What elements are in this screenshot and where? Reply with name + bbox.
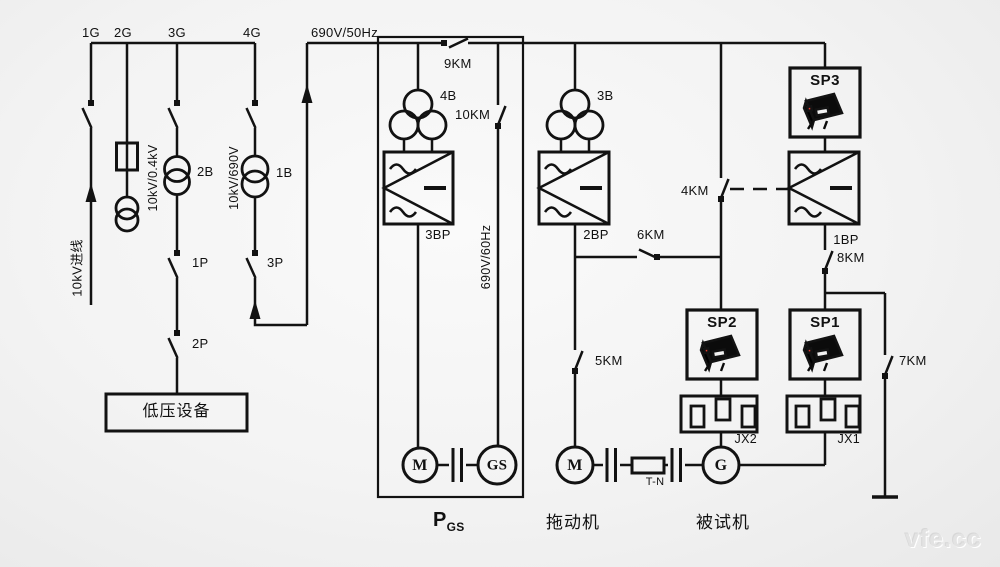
- converter-1bp-icon: [789, 152, 859, 224]
- watermark: vfe.cc: [905, 527, 982, 552]
- feeder-2g-branch: [116, 43, 138, 231]
- tie-6km-branch: [575, 250, 721, 261]
- torque-sensor-box: [632, 458, 664, 473]
- incoming-line-label: 10kV进线: [71, 239, 84, 296]
- converter-2bp-icon: [539, 152, 609, 224]
- connector-pin-icon: [846, 406, 859, 427]
- switch-1p-icon: [174, 250, 180, 256]
- converter-3bp-icon: [384, 152, 453, 224]
- feeder-label-1g: 1G: [82, 26, 100, 39]
- power-analyzer-icon: [701, 336, 739, 371]
- flow-arrow-icon: [250, 300, 261, 319]
- connector-pin-icon: [821, 399, 835, 420]
- transformer-label-3b: 3B: [597, 89, 614, 102]
- ratio-label-2b: 10kV/0.4kV: [147, 145, 160, 212]
- analyzer-label-sp2: SP2: [687, 315, 757, 330]
- drive-machine-caption: 拖动机: [546, 514, 600, 531]
- lv-equipment-label: 低压设备: [106, 404, 247, 420]
- bus-label-690v50hz: 690V/50Hz: [311, 26, 378, 39]
- pgs-enclosure-box: [378, 37, 523, 497]
- power-analyzer-icon: [804, 94, 842, 129]
- pgs-caption-sub: GS: [447, 520, 465, 534]
- switch-8km-icon: [822, 268, 828, 274]
- feeder-1g-branch: [83, 43, 97, 305]
- switch-label-6km: 6KM: [637, 228, 665, 241]
- analyzer-label-sp1: SP1: [790, 315, 860, 330]
- ratio-label-1b: 10kV/690V: [228, 146, 241, 210]
- motor-m-label: M: [412, 458, 427, 474]
- flow-arrow-icon: [302, 84, 313, 103]
- transformer-4b-branch: [390, 43, 446, 152]
- torque-sensor-label: T-N: [646, 477, 665, 488]
- switch-10km-icon: [495, 123, 501, 129]
- pgs-caption: PGS: [433, 510, 465, 533]
- switch-8km-branch: [822, 224, 833, 310]
- flow-arrow-icon: [86, 183, 97, 202]
- switch-3p-icon: [252, 250, 258, 256]
- transformer-label-4b: 4B: [440, 89, 457, 102]
- connector-pin-icon: [691, 406, 704, 427]
- switch-label-5km: 5KM: [595, 354, 623, 367]
- transformer-label-2b: 2B: [197, 165, 214, 178]
- switch-5km-icon: [572, 368, 578, 374]
- power-analyzer-icon: [804, 336, 842, 371]
- junction-label-jx2: JX2: [681, 433, 757, 446]
- feeder-label-3g: 3G: [168, 26, 186, 39]
- transformer-3b-icon: [561, 90, 589, 118]
- switch-9km-icon: [441, 40, 447, 46]
- switch-label-9km: 9KM: [444, 57, 472, 70]
- switch-6km-icon: [654, 254, 660, 260]
- transformer-4b-icon: [404, 90, 432, 118]
- switch-label-8km: 8KM: [837, 251, 865, 264]
- switch-2p-icon: [174, 330, 180, 336]
- drive-motor-label: M: [567, 458, 582, 474]
- bus-label-690v60hz: 690V/60Hz: [480, 225, 493, 290]
- transformer-label-1b: 1B: [276, 166, 293, 179]
- transformer-3b-branch: [547, 43, 603, 152]
- converter-label-3bp: 3BP: [425, 228, 450, 241]
- feeder-label-2g: 2G: [114, 26, 132, 39]
- test-generator-label: G: [715, 458, 728, 474]
- switch-label-3p: 3P: [267, 256, 284, 269]
- switch-7km-icon: [882, 373, 888, 379]
- feeder-label-4g: 4G: [243, 26, 261, 39]
- switch-label-7km: 7KM: [899, 354, 927, 367]
- feeder-4g-branch: [242, 43, 313, 325]
- generator-gs-label: GS: [487, 459, 508, 474]
- test-machine-caption: 被试机: [696, 514, 750, 531]
- transformer-1b-icon: [242, 156, 268, 182]
- connector-pin-icon: [716, 399, 730, 420]
- switch-label-1p: 1P: [192, 256, 209, 269]
- analyzer-label-sp3: SP3: [790, 73, 860, 88]
- switch-4km-branch: [718, 43, 789, 310]
- connector-pin-icon: [742, 406, 755, 427]
- switch-4km-icon: [718, 196, 724, 202]
- junction-label-jx1: JX1: [787, 433, 860, 446]
- connector-pin-icon: [796, 406, 809, 427]
- pgs-caption-main: P: [433, 509, 447, 531]
- switch-10km-branch: [495, 43, 506, 446]
- circuit-diagram: 1G 2G 3G 4G 690V/50Hz 10kV进线 10kV/0.4kV …: [0, 0, 1000, 567]
- switch-label-4km: 4KM: [681, 184, 709, 197]
- converter-label-2bp: 2BP: [583, 228, 608, 241]
- lv-bus-690v50hz: [307, 39, 825, 48]
- switch-label-10km: 10KM: [455, 108, 490, 121]
- converter-label-1bp: 1BP: [833, 233, 858, 246]
- switch-label-2p: 2P: [192, 337, 209, 350]
- analyzer-sp3-group: [790, 43, 860, 152]
